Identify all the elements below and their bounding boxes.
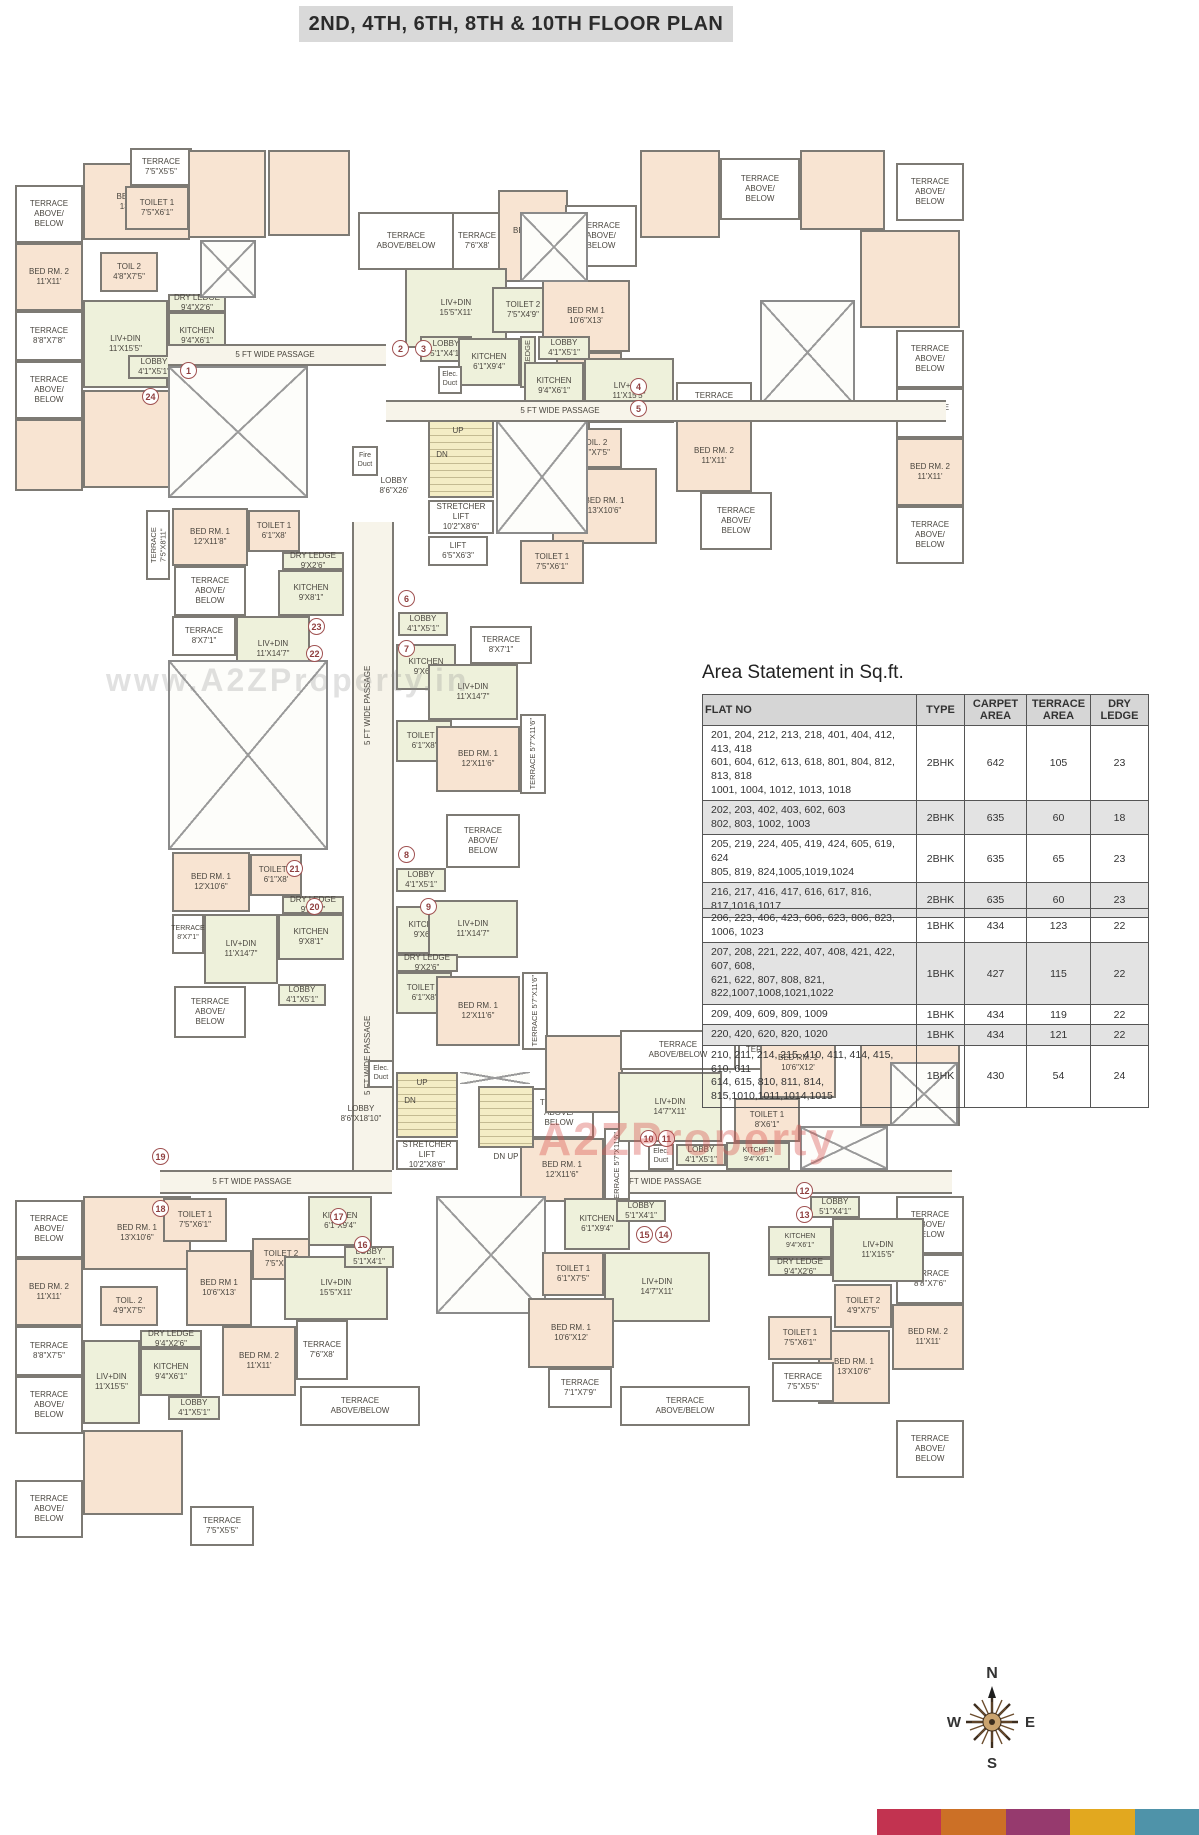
duct-x: [168, 366, 308, 498]
room-dry-ledge: DRY LEDGE 9'X2'6": [396, 954, 458, 972]
room-bedroom-2: BED RM. 2 11'X11': [676, 420, 752, 492]
unit-number-badge: 9: [420, 898, 437, 915]
room-bedroom: [15, 419, 83, 491]
room-toilet-1: TOILET 1 6'1"X7'5": [542, 1252, 604, 1296]
cell-flats: 201, 204, 212, 213, 218, 401, 404, 412, …: [703, 726, 917, 801]
cell-type: 2BHK: [917, 835, 965, 883]
table-row: 205, 219, 224, 405, 419, 424, 605, 619, …: [703, 835, 1149, 883]
room-lobby: LOBBY 5'1"X4'1": [810, 1196, 860, 1218]
lobby-label: LOBBY 8'6"X18'10": [328, 1104, 394, 1130]
area-statement-table-1bhk: 206, 223, 406, 423, 606, 623, 806, 823, …: [702, 908, 1149, 1108]
cell-flats: 220, 420, 620, 820, 1020: [703, 1025, 917, 1046]
cell-flats: 209, 409, 609, 809, 1009: [703, 1004, 917, 1025]
room-terrace: TERRACE 5'7"X11'6": [520, 714, 546, 794]
passage-label: 5 FT WIDE PASSAGE: [182, 1177, 322, 1189]
cell-terrace: 115: [1027, 943, 1091, 1005]
unit-number-badge: 17: [330, 1208, 347, 1225]
unit-number-badge: 23: [308, 618, 325, 635]
cell-carpet: 434: [965, 1004, 1027, 1025]
room-terrace: TERRACE 7'5"X5'5": [190, 1506, 254, 1546]
room-bedroom: [860, 230, 960, 328]
room-bedroom-1: BED RM 1 10'6"X13': [186, 1250, 252, 1326]
room-terrace: TERRACE 8'X7'1": [172, 616, 236, 656]
room-living-dining: LIV+DIN 11'X14'7": [428, 900, 518, 958]
room-dry-ledge: DRY LEDGE 9'4"X2'6": [768, 1258, 832, 1276]
duct-x: [200, 240, 256, 298]
room-bedroom-2: BED RM. 2 11'X11': [15, 1258, 83, 1326]
passage-label: 5 FT WIDE PASSAGE: [205, 350, 345, 362]
room-terrace: TERRACE ABOVE/ BELOW: [174, 986, 246, 1038]
cell-terrace: 65: [1027, 835, 1091, 883]
unit-number-badge: 16: [354, 1236, 371, 1253]
area-statement-title: Area Statement in Sq.ft.: [702, 662, 904, 684]
area-statement-table-2bhk: FLAT NO TYPE CARPET AREA TERRACE AREA DR…: [702, 694, 1149, 918]
watermark-gray: www.A2ZProperty.in: [106, 662, 469, 699]
room-terrace: TERRACE 7'6"X8': [296, 1320, 348, 1380]
passage-label: 5 FT WIDE PASSAGE: [363, 990, 383, 1120]
room-terrace: TERRACE 7'1"X7'9": [548, 1368, 612, 1408]
room-bedroom: [188, 150, 266, 238]
unit-number-badge: 7: [398, 640, 415, 657]
cell-terrace: 123: [1027, 909, 1091, 943]
room-dry-ledge: DRY LEDGE 9'X2'6": [282, 552, 344, 570]
cell-carpet: 427: [965, 943, 1027, 1005]
cell-carpet: 434: [965, 909, 1027, 943]
room-terrace: TERRACE ABOVE/ BELOW: [720, 158, 800, 220]
stair-up-label: UP: [448, 426, 468, 436]
room-terrace: TERRACE ABOVE/ BELOW: [896, 163, 964, 221]
terrace-label: TERRACE 5'7"X11'6": [528, 718, 537, 789]
room-bedroom: [640, 150, 720, 238]
unit-number-badge: 3: [415, 340, 432, 357]
room-kitchen: KITCHEN 9'4"X6'1": [140, 1348, 202, 1396]
room-terrace: TERRACE 7'6"X8': [452, 212, 502, 270]
room-terrace: TERRACE 8'8"X7'8": [15, 311, 83, 361]
room-lobby: LOBBY 4'1"X5'1": [168, 1396, 220, 1420]
unit-number-badge: 5: [630, 400, 647, 417]
room-bedroom-2: BED RM. 2 11'X11': [896, 438, 964, 506]
cell-carpet: 434: [965, 1025, 1027, 1046]
brand-color-bar: [877, 1809, 1199, 1835]
room-terrace: TERRACE ABOVE/ BELOW: [15, 1480, 83, 1538]
room-kitchen: KITCHEN 9'4"X6'1": [768, 1226, 832, 1258]
unit-number-badge: 2: [392, 340, 409, 357]
compass-s-label: S: [987, 1755, 997, 1772]
terrace-label: TERRACE 5'7"X11'6": [530, 975, 539, 1046]
bar-segment: [877, 1809, 941, 1835]
table-row: 201, 204, 212, 213, 218, 401, 404, 412, …: [703, 726, 1149, 801]
room-terrace: TERRACE ABOVE/ BELOW: [15, 361, 83, 419]
unit-number-badge: 8: [398, 846, 415, 863]
cell-flats: 202, 203, 402, 403, 602, 603 802, 803, 1…: [703, 801, 917, 835]
room-terrace: TERRACE ABOVE/ BELOW: [15, 1376, 83, 1434]
room-toilet-1: TOILET 1 7'5"X6'1": [768, 1316, 832, 1360]
cell-dry: 18: [1091, 801, 1149, 835]
room-terrace: TERRACE 8'X7'1": [172, 914, 204, 954]
room-lobby: LOBBY 5'1"X4'1": [616, 1200, 666, 1222]
passage-strip: [386, 400, 946, 422]
lobby-label: LOBBY 8'6"X26': [366, 476, 422, 500]
cell-dry: 22: [1091, 1025, 1149, 1046]
room-living-dining: LIV+DIN 11'X14'7": [204, 914, 278, 984]
unit-number-badge: 24: [142, 388, 159, 405]
bar-segment: [1135, 1809, 1199, 1835]
cell-terrace: 121: [1027, 1025, 1091, 1046]
table-row: 206, 223, 406, 423, 606, 623, 806, 823, …: [703, 909, 1149, 943]
unit-number-badge: 20: [306, 898, 323, 915]
room-terrace: TERRACE ABOVE/ BELOW: [700, 492, 772, 550]
stair-dn-up-label: DN UP: [480, 1152, 532, 1164]
room-kitchen: KITCHEN 6'1"X9'4": [458, 338, 520, 386]
unit-number-badge: 12: [796, 1182, 813, 1199]
room-bedroom-2: BED RM. 2 11'X11': [892, 1304, 964, 1370]
room-bedroom-2: BED RM. 2 11'X11': [222, 1326, 296, 1396]
staircase: [478, 1086, 534, 1148]
cell-type: 1BHK: [917, 1046, 965, 1108]
room-lobby: LOBBY 4'1"X5'1": [538, 336, 590, 360]
cell-dry: 23: [1091, 835, 1149, 883]
passage-label: 5 FT WIDE PASSAGE: [363, 640, 383, 770]
room-terrace: TERRACE ABOVE/BELOW: [358, 212, 454, 270]
duct-x: [760, 300, 855, 405]
bar-segment: [941, 1809, 1006, 1835]
cell-type: 2BHK: [917, 726, 965, 801]
room-lift: LIFT 6'5"X6'3": [428, 536, 488, 566]
room-dry-ledge: DRY LEDGE 9'4"X2'6": [140, 1330, 202, 1348]
room-living-dining: LIV+DIN 14'7"X11': [604, 1252, 710, 1322]
room-terrace: TERRACE 8'8"X7'5": [15, 1326, 83, 1376]
room-lobby: LOBBY 4'1"X5'1": [278, 984, 326, 1006]
room-terrace: TERRACE 8'X7'1": [470, 626, 532, 664]
room-kitchen: KITCHEN 9'X8'1": [278, 570, 344, 616]
cell-terrace: 105: [1027, 726, 1091, 801]
cell-dry: 22: [1091, 943, 1149, 1005]
room-terrace: TERRACE ABOVE/ BELOW: [446, 814, 520, 868]
bar-segment: [1006, 1809, 1070, 1835]
table-row: 210, 211, 214, 215, 410, 411, 414, 415, …: [703, 1046, 1149, 1108]
unit-number-badge: 4: [630, 378, 647, 395]
unit-number-badge: 13: [796, 1206, 813, 1223]
col-terrace-area: TERRACE AREA: [1027, 695, 1091, 726]
room-toilet-2: TOIL 2 4'8"X7'5": [100, 252, 158, 292]
room-toilet-1: TOILET 1 6'1"X8': [248, 510, 300, 552]
room-terrace: TERRACE 7'5"X5'5": [772, 1362, 834, 1402]
room-terrace: TERRACE ABOVE/BELOW: [620, 1386, 750, 1426]
unit-number-badge: 19: [152, 1148, 169, 1165]
unit-number-badge: 18: [152, 1200, 169, 1217]
room-toilet-1: TOILET 1 7'5"X6'1": [163, 1198, 227, 1242]
room-terrace: TERRACE ABOVE/ BELOW: [896, 330, 964, 388]
room-terrace: TERRACE 7'5"X5'5": [130, 148, 192, 186]
room-living-dining: LIV+DIN 11'X15'5": [832, 1218, 924, 1282]
room-bedroom-1: BED RM. 1 12'X10'6": [172, 852, 250, 912]
cell-flats: 207, 208, 221, 222, 407, 408, 421, 422, …: [703, 943, 917, 1005]
room-lobby: LOBBY 4'1"X5'1": [396, 868, 446, 892]
room-stretcher-lift: STRETCHER LIFT 10'2"X8'6": [396, 1140, 458, 1170]
room-toilet-1: TOILET 1 7'5"X6'1": [125, 186, 189, 230]
elec-duct: Elec. Duct: [368, 1060, 394, 1088]
fire-duct: Fire Duct: [352, 446, 378, 476]
unit-number-badge: 6: [398, 590, 415, 607]
room-toilet-1: TOILET 1 7'5"X6'1": [520, 540, 584, 584]
elec-duct: Elec. Duct: [438, 366, 462, 394]
unit-number-badge: 14: [655, 1226, 672, 1243]
unit-number-badge: 1: [180, 362, 197, 379]
bar-segment: [1070, 1809, 1135, 1835]
cell-type: 1BHK: [917, 1025, 965, 1046]
watermark-red: A2ZProperty: [538, 1112, 836, 1166]
duct-x: [520, 212, 588, 282]
room-terrace: TERRACE ABOVE/ BELOW: [15, 185, 83, 243]
cell-terrace: 119: [1027, 1004, 1091, 1025]
stair-up-label: UP: [412, 1078, 432, 1088]
room-terrace: TERRACE ABOVE/BELOW: [300, 1386, 420, 1426]
room-terrace: TERRACE ABOVE/ BELOW: [896, 1420, 964, 1478]
compass-w-label: W: [947, 1714, 962, 1731]
cell-type: 1BHK: [917, 1004, 965, 1025]
cell-type: 1BHK: [917, 909, 965, 943]
room-bedroom-1: BED RM. 1 10'6"X12': [528, 1298, 614, 1368]
table-row: 202, 203, 402, 403, 602, 603 802, 803, 1…: [703, 801, 1149, 835]
passage-label: 5 FT WIDE PASSAGE: [490, 406, 630, 418]
room-kitchen: KITCHEN 9'X8'1": [278, 914, 344, 960]
table-row: 209, 409, 609, 809, 1009 1BHK 434 119 22: [703, 1004, 1149, 1025]
room-bedroom: [545, 1035, 623, 1113]
room-toilet-2: TOILET 2 4'9"X7'5": [834, 1284, 892, 1328]
terrace-label: TERRACE 7'5"X8'11": [149, 513, 168, 577]
cell-terrace: 54: [1027, 1046, 1091, 1108]
room-lobby: LOBBY 4'1"X5'1": [398, 612, 448, 636]
room-bedroom-2: BED RM. 2 11'X11': [15, 243, 83, 311]
room-bedroom: [268, 150, 350, 236]
room-bedroom-1: BED RM. 1 12'X11'8": [172, 508, 248, 566]
table-row: 207, 208, 221, 222, 407, 408, 421, 422, …: [703, 943, 1149, 1005]
cell-dry: 22: [1091, 909, 1149, 943]
cell-flats: 205, 219, 224, 405, 419, 424, 605, 619, …: [703, 835, 917, 883]
col-dry-ledge: DRY LEDGE: [1091, 695, 1149, 726]
room-terrace: TERRACE ABOVE/ BELOW: [174, 566, 246, 616]
cell-flats: 206, 223, 406, 423, 606, 623, 806, 823, …: [703, 909, 917, 943]
compass-n-label: N: [986, 1665, 998, 1682]
col-carpet-area: CARPET AREA: [965, 695, 1027, 726]
room-terrace: TERRACE ABOVE/ BELOW: [896, 506, 964, 564]
duct-x: [496, 420, 588, 534]
cell-carpet: 430: [965, 1046, 1027, 1108]
cell-dry: 24: [1091, 1046, 1149, 1108]
col-type: TYPE: [917, 695, 965, 726]
room-bedroom: [83, 1430, 183, 1515]
room-toilet-2: TOIL. 2 4'9"X7'5": [100, 1286, 158, 1326]
table-row: 220, 420, 620, 820, 1020 1BHK 434 121 22: [703, 1025, 1149, 1046]
duct-x: [460, 1072, 530, 1084]
floor-plan-title: 2ND, 4TH, 6TH, 8TH & 10TH FLOOR PLAN: [299, 6, 733, 42]
unit-number-badge: 15: [636, 1226, 653, 1243]
cell-carpet: 635: [965, 801, 1027, 835]
compass-rose: N W E S: [942, 1662, 1042, 1777]
cell-carpet: 642: [965, 726, 1027, 801]
cell-dry: 23: [1091, 726, 1149, 801]
cell-terrace: 60: [1027, 801, 1091, 835]
duct-x: [436, 1196, 546, 1314]
room-bedroom-1: BED RM. 1 12'X11'6": [436, 726, 520, 792]
room-terrace: TERRACE ABOVE/ BELOW: [15, 1200, 83, 1258]
cell-flats: 210, 211, 214, 215, 410, 411, 414, 415, …: [703, 1046, 917, 1108]
room-living-dining: LIV+DIN 11'X15'5": [83, 1340, 140, 1424]
cell-dry: 22: [1091, 1004, 1149, 1025]
room-bedroom-1: BED RM. 1 12'X11'6": [436, 976, 520, 1046]
cell-type: 1BHK: [917, 943, 965, 1005]
room-terrace: TERRACE 7'5"X8'11": [146, 510, 170, 580]
unit-number-badge: 22: [306, 645, 323, 662]
col-flat-no: FLAT NO: [703, 695, 917, 726]
cell-carpet: 635: [965, 835, 1027, 883]
room-stretcher-lift: STRETCHER LIFT 10'2"X8'6": [428, 500, 494, 534]
room-bedroom: [800, 150, 885, 230]
stair-dn-label: DN: [400, 1096, 420, 1106]
compass-star-icon: [966, 1686, 1018, 1748]
unit-number-badge: 21: [286, 860, 303, 877]
compass-e-label: E: [1025, 1714, 1035, 1731]
cell-type: 2BHK: [917, 801, 965, 835]
stair-dn-label: DN: [432, 450, 452, 460]
